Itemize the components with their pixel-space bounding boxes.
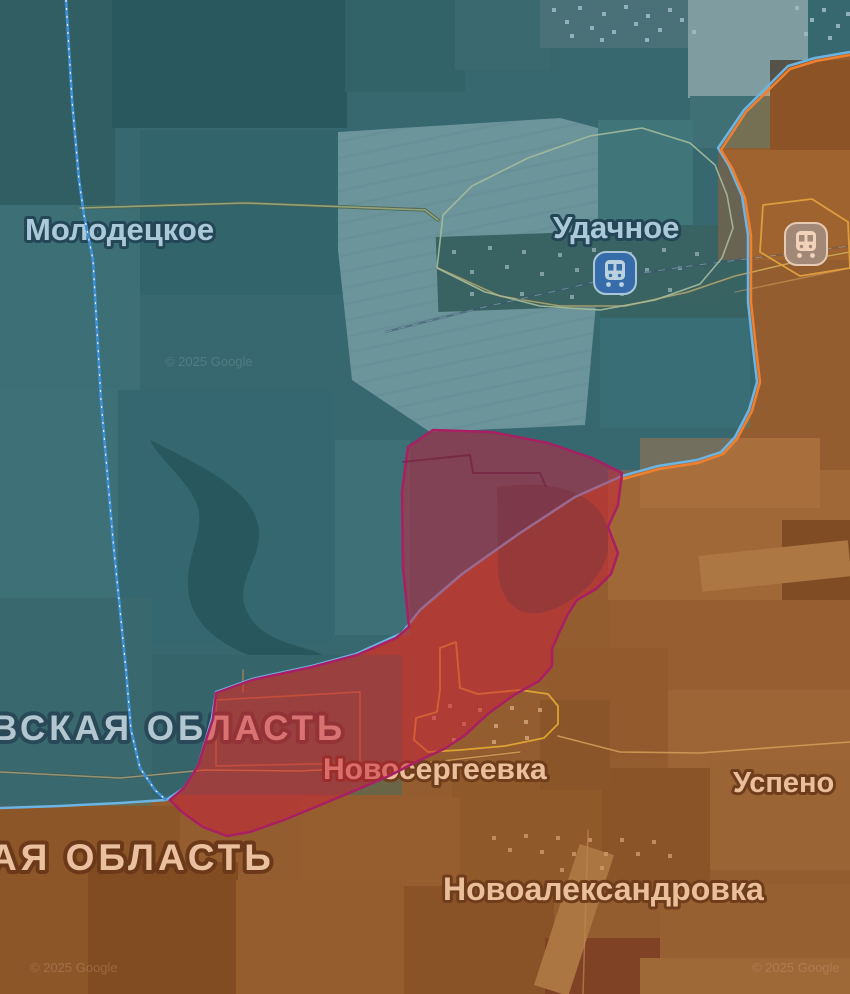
map-viewport[interactable]: Молодецкое Удачное ВСКАЯ ОБЛАСТЬ АЯ ОБЛА…: [0, 0, 850, 994]
map-canvas[interactable]: Молодецкое Удачное ВСКАЯ ОБЛАСТЬ АЯ ОБЛА…: [0, 0, 850, 994]
